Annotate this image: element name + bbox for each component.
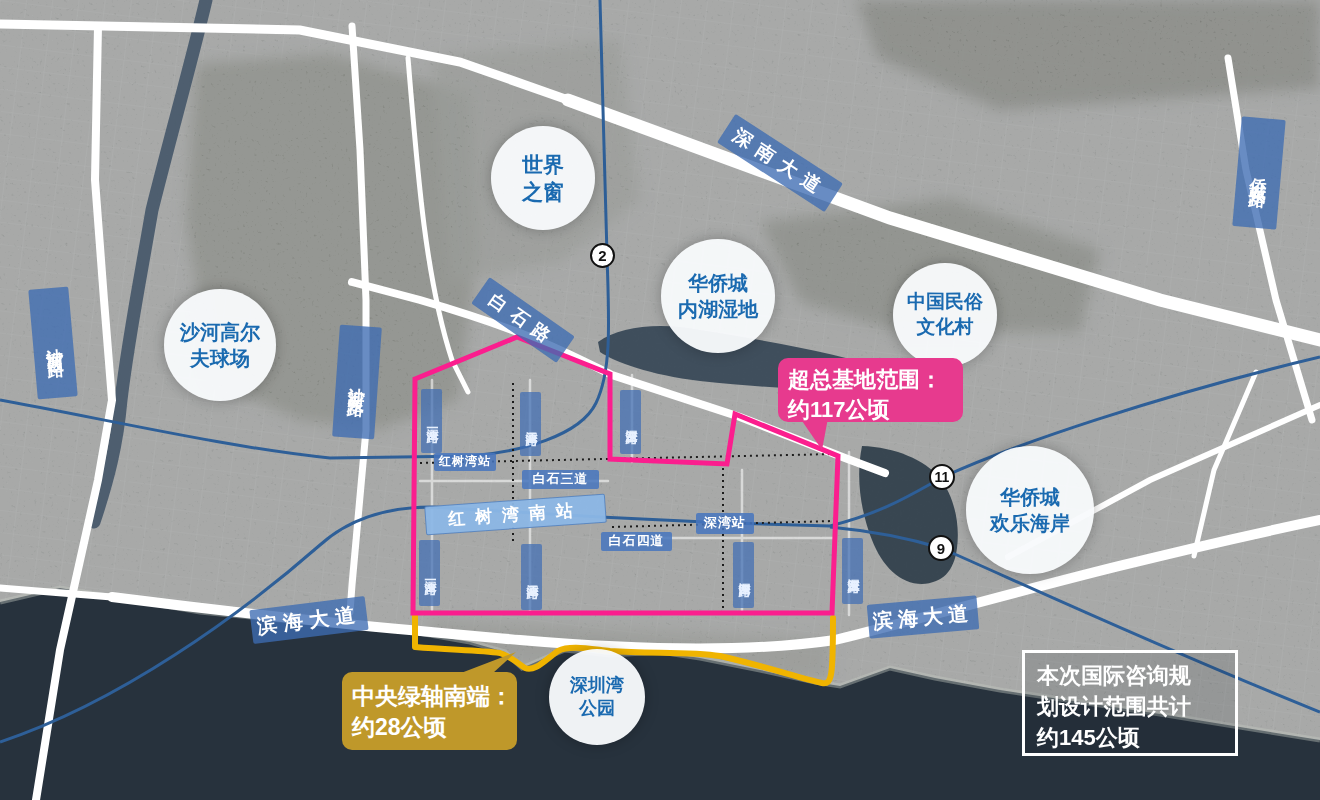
planning-map: 深南大道 白石路 沙河西路 沙河东路 侨城东路 滨海大道 滨海大道 深湾一路 深…	[0, 0, 1320, 800]
station-label-hongshuwan: 红树湾站	[434, 453, 496, 471]
poi-label: 内湖湿地	[678, 296, 758, 322]
poi-label: 夫球场	[190, 345, 250, 371]
metro-line-9-badge: 9	[928, 535, 954, 561]
info-line: 划设计范围共计	[1037, 692, 1223, 723]
callout-line: 约28公顷	[352, 712, 507, 743]
road-label-baishi-3rd-avenue: 白石三道	[522, 470, 599, 489]
poi-label: 华侨城	[688, 270, 748, 296]
info-line: 约145公顷	[1037, 723, 1223, 754]
road-label-shenwan-1st-north: 深湾一路	[421, 389, 442, 453]
callout-line: 超总基地范围：	[788, 365, 953, 395]
poi-label: 沙河高尔	[180, 319, 260, 345]
poi-circle-shenzhen-bay-park: 深圳湾 公园	[549, 649, 645, 745]
poi-label: 文化村	[917, 315, 974, 340]
info-line: 本次国际咨询规	[1037, 661, 1223, 692]
callout-super-hq-area: 超总基地范围： 约117公顷	[778, 358, 963, 422]
road-label-shenwan-2nd-south: 深湾二路	[521, 544, 542, 610]
road-label-shenwan-2nd-north: 深湾二路	[520, 392, 541, 456]
poi-label: 深圳湾	[570, 674, 624, 697]
poi-label: 华侨城	[1000, 484, 1060, 510]
poi-circle-china-folk-culture-village: 中国民俗 文化村	[893, 263, 997, 367]
scope-info-box: 本次国际咨询规 划设计范围共计 约145公顷	[1022, 650, 1238, 756]
road-label-shenwan-3rd: 深湾三路	[620, 390, 641, 454]
poi-label: 中国民俗	[907, 290, 983, 315]
road-label-baishi-4th-avenue: 白石四道	[601, 532, 672, 551]
metro-line-2-badge: 2	[590, 243, 615, 268]
poi-circle-shahe-golf-course: 沙河高尔 夫球场	[164, 289, 276, 401]
road-label-shenwan-1st-south: 深湾一路	[419, 540, 440, 606]
poi-label: 欢乐海岸	[990, 510, 1070, 536]
poi-circle-oct-inner-lake-wetland: 华侨城 内湖湿地	[661, 239, 775, 353]
callout-line: 约117公顷	[788, 395, 953, 425]
station-label-shenwan: 深湾站	[696, 513, 754, 534]
road-label-shenwan-5th: 深湾五路	[842, 538, 863, 604]
poi-label: 世界	[522, 151, 564, 178]
callout-central-green-axis: 中央绿轴南端： 约28公顷	[342, 672, 517, 750]
poi-label: 公园	[579, 697, 615, 720]
road-label-shenwan-4th: 深湾四路	[733, 542, 754, 608]
poi-circle-oct-happy-coast: 华侨城 欢乐海岸	[966, 446, 1094, 574]
metro-line-11-badge: 11	[929, 464, 955, 490]
road-label-shahe-east-road: 沙河东路	[332, 325, 382, 440]
callout-line: 中央绿轴南端：	[352, 681, 507, 712]
poi-circle-window-of-the-world: 世界 之窗	[491, 126, 595, 230]
poi-label: 之窗	[522, 178, 564, 205]
